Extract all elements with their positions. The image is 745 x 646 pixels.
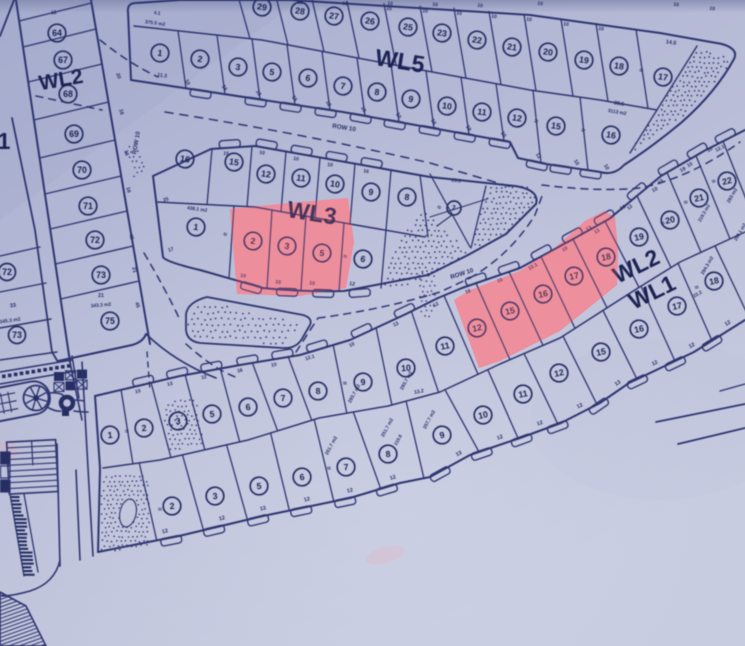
svg-text:10: 10 xyxy=(456,10,463,17)
svg-text:12: 12 xyxy=(260,168,271,179)
svg-text:28: 28 xyxy=(294,5,305,16)
svg-text:64: 64 xyxy=(52,28,62,38)
svg-text:73: 73 xyxy=(96,270,106,280)
svg-text:72: 72 xyxy=(2,267,12,277)
svg-text:26: 26 xyxy=(364,15,375,26)
svg-text:2: 2 xyxy=(141,423,147,433)
svg-text:2: 2 xyxy=(169,501,175,511)
svg-text:10: 10 xyxy=(526,17,533,24)
svg-text:8: 8 xyxy=(315,386,321,396)
svg-text:20: 20 xyxy=(542,46,553,57)
svg-text:27: 27 xyxy=(328,10,339,21)
svg-text:10: 10 xyxy=(297,0,304,6)
svg-text:2: 2 xyxy=(452,205,456,212)
svg-text:10: 10 xyxy=(441,100,452,111)
svg-text:29: 29 xyxy=(256,1,267,12)
svg-text:4.1: 4.1 xyxy=(153,10,161,17)
svg-text:72: 72 xyxy=(90,235,100,245)
svg-text:10: 10 xyxy=(563,21,570,28)
svg-text:5: 5 xyxy=(256,481,262,491)
svg-text:16: 16 xyxy=(179,153,190,164)
svg-text:19: 19 xyxy=(578,54,589,65)
svg-text:3: 3 xyxy=(212,491,218,501)
svg-text:11: 11 xyxy=(51,10,57,17)
svg-text:70: 70 xyxy=(77,165,87,175)
svg-text:6: 6 xyxy=(299,472,305,482)
svg-text:3: 3 xyxy=(175,416,181,426)
svg-text:17: 17 xyxy=(657,71,668,82)
svg-text:67: 67 xyxy=(58,55,68,65)
svg-text:12: 12 xyxy=(346,487,353,494)
svg-text:10: 10 xyxy=(491,14,498,21)
svg-text:10: 10 xyxy=(342,1,349,8)
svg-text:7: 7 xyxy=(280,393,286,403)
svg-text:7: 7 xyxy=(343,462,349,472)
svg-text:12: 12 xyxy=(511,112,522,123)
svg-text:71: 71 xyxy=(83,201,93,211)
svg-text:10: 10 xyxy=(259,150,266,157)
svg-text:5: 5 xyxy=(209,409,215,419)
svg-text:73: 73 xyxy=(12,330,22,340)
svg-text:11: 11 xyxy=(296,172,307,183)
svg-text:10: 10 xyxy=(293,156,300,163)
svg-text:9: 9 xyxy=(360,377,366,387)
svg-text:11: 11 xyxy=(477,106,488,117)
svg-text:75: 75 xyxy=(105,316,115,326)
svg-text:69: 69 xyxy=(69,129,79,139)
svg-text:16: 16 xyxy=(363,168,370,175)
svg-text:12: 12 xyxy=(161,528,168,535)
svg-text:21: 21 xyxy=(98,293,104,299)
svg-text:8: 8 xyxy=(385,449,391,459)
svg-text:23: 23 xyxy=(436,27,447,38)
svg-text:22: 22 xyxy=(471,34,482,45)
svg-text:10: 10 xyxy=(477,3,484,10)
svg-text:10: 10 xyxy=(432,2,439,9)
svg-text:10: 10 xyxy=(387,1,394,8)
svg-text:12: 12 xyxy=(349,281,356,288)
svg-text:15: 15 xyxy=(550,120,561,131)
svg-text:33: 33 xyxy=(10,303,17,310)
svg-text:6: 6 xyxy=(245,402,251,412)
svg-text:15: 15 xyxy=(228,156,239,167)
svg-text:10: 10 xyxy=(598,26,605,33)
svg-text:21: 21 xyxy=(506,41,517,52)
svg-text:12: 12 xyxy=(303,496,310,503)
svg-text:1: 1 xyxy=(107,430,113,440)
svg-text:1: 1 xyxy=(0,128,11,154)
svg-text:18: 18 xyxy=(613,60,624,71)
svg-text:10: 10 xyxy=(327,162,334,169)
svg-text:10: 10 xyxy=(422,8,429,15)
svg-text:25: 25 xyxy=(402,21,413,32)
svg-text:15: 15 xyxy=(223,151,230,158)
svg-text:16: 16 xyxy=(605,129,616,140)
svg-text:10: 10 xyxy=(329,178,340,189)
